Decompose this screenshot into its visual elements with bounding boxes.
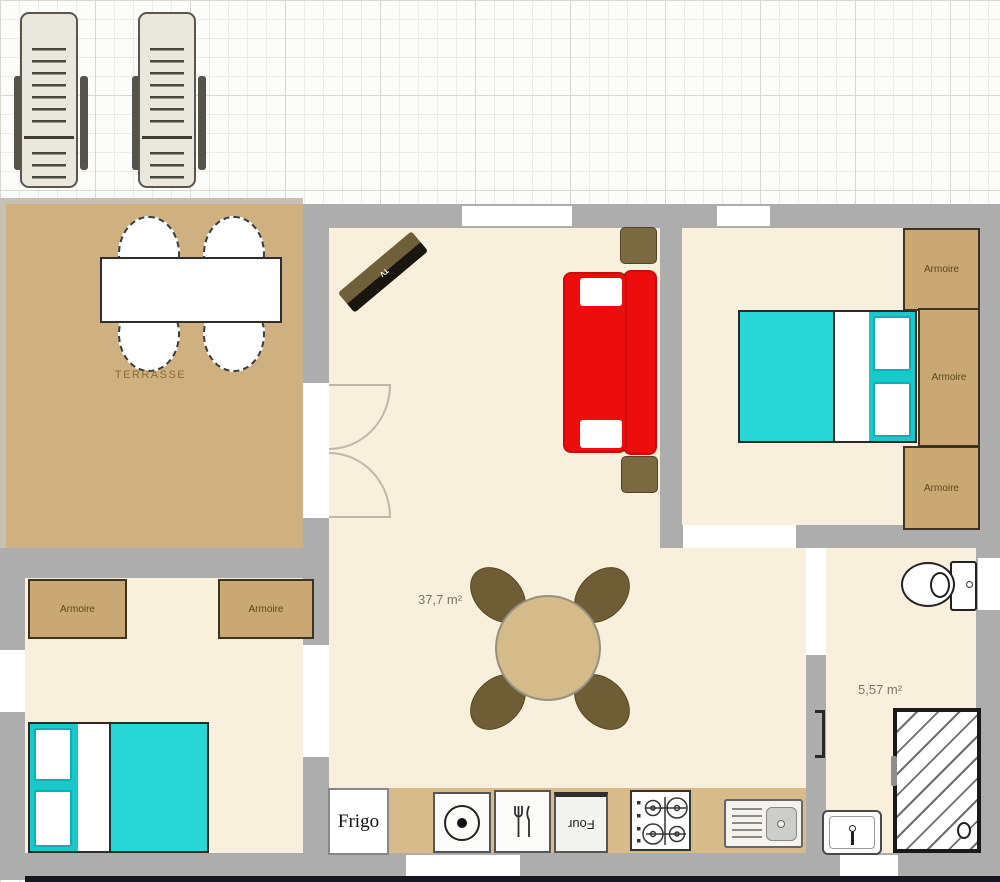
- shower-handle: [891, 756, 897, 786]
- window-bathroom-bottom[interactable]: [840, 855, 898, 878]
- wall-left-column: [303, 204, 329, 880]
- toilet-bowl[interactable]: [901, 562, 955, 607]
- faucet-stem: [851, 832, 854, 845]
- washing-machine-drum-icon: [444, 805, 480, 841]
- sun-lounger-2[interactable]: [132, 10, 206, 192]
- lounger-divider: [24, 136, 74, 139]
- lounger-slats: [32, 152, 66, 184]
- bed-pillow: [873, 316, 911, 371]
- bed-bedroom1[interactable]: [738, 310, 917, 443]
- lounger-slats: [32, 48, 66, 132]
- fridge[interactable]: Frigo: [328, 788, 389, 855]
- sun-lounger-1[interactable]: [14, 10, 88, 192]
- bedroom1-door-opening[interactable]: [683, 525, 796, 548]
- oven[interactable]: Four: [554, 792, 608, 853]
- door-tick-bottom: [815, 755, 825, 758]
- bed-pillow: [34, 790, 72, 847]
- sofa-pillow: [580, 420, 622, 448]
- living-area-label: 37,7 m²: [418, 592, 462, 607]
- toilet-seat: [930, 572, 950, 598]
- terrace-left-wall: [0, 198, 6, 548]
- dishwasher[interactable]: [494, 790, 551, 853]
- dining-table[interactable]: [495, 595, 601, 701]
- sink-drain: [777, 820, 785, 828]
- lounger-armrest: [80, 76, 88, 170]
- sofa[interactable]: [563, 270, 657, 455]
- french-door-opening[interactable]: [303, 383, 329, 518]
- washbasin[interactable]: [822, 810, 882, 855]
- bed-pillow-panel: [869, 312, 915, 441]
- lounger-slats: [150, 152, 184, 184]
- bottom-edge-bar: [25, 876, 1000, 882]
- window-kitchen-bottom[interactable]: [406, 855, 520, 878]
- wardrobe-label: Armoire: [924, 483, 959, 494]
- lounger-divider: [142, 136, 192, 139]
- window-living-top[interactable]: [462, 206, 572, 226]
- gas-burners-icon: [632, 792, 689, 849]
- bathroom-door-leaf[interactable]: [815, 710, 825, 758]
- terrace-label: TERRASSE: [103, 369, 198, 381]
- bedroom2-door-opening[interactable]: [303, 645, 329, 757]
- shower-drain: [957, 822, 971, 839]
- shower[interactable]: [893, 708, 981, 853]
- wardrobe[interactable]: Armoire: [218, 579, 314, 639]
- sink-drainboard: [732, 808, 762, 841]
- wardrobe[interactable]: Armoire: [903, 228, 980, 311]
- side-table-bottom[interactable]: [621, 456, 658, 493]
- window-bathroom-right[interactable]: [978, 558, 1000, 610]
- lounger-body: [138, 12, 196, 188]
- bathroom-area-label: 5,57 m²: [858, 682, 902, 697]
- terrace-table[interactable]: [100, 257, 282, 323]
- gas-hob[interactable]: [630, 790, 691, 851]
- bed-pillow-panel: [30, 724, 78, 851]
- window-bedroom1-top[interactable]: [717, 206, 770, 226]
- wall-terrace-bedroom2: [0, 548, 329, 578]
- wall-top: [303, 204, 1000, 228]
- tv-label: TV: [377, 266, 388, 277]
- bed-blanket: [740, 312, 835, 441]
- sofa-pillow: [580, 278, 622, 306]
- bathroom-door-opening[interactable]: [806, 548, 826, 655]
- fridge-label: Frigo: [338, 811, 379, 833]
- washing-machine[interactable]: [433, 792, 491, 853]
- wardrobe[interactable]: Armoire: [903, 446, 980, 530]
- lounger-body: [20, 12, 78, 188]
- wardrobe[interactable]: Armoire: [918, 308, 980, 447]
- toilet-flush-button: [966, 581, 973, 588]
- bed-pillow: [34, 728, 72, 781]
- drum-center-dot: [457, 818, 467, 828]
- faucet-icon: [849, 825, 856, 832]
- floor-plan: TERRASSE TV 37,7 m² Armoire Armoire Armo…: [0, 0, 1000, 882]
- lounger-slats: [150, 48, 184, 132]
- door-line: [822, 710, 825, 758]
- side-table-top[interactable]: [620, 227, 657, 264]
- wall-bedroom2-left: [0, 578, 25, 880]
- bed-pillow: [873, 382, 911, 437]
- terrace-top-wall: [0, 198, 303, 204]
- wardrobe-label: Armoire: [60, 604, 95, 615]
- bed-blanket: [109, 724, 207, 851]
- sofa-backrest: [623, 270, 657, 455]
- bed-bedroom2[interactable]: [28, 722, 209, 853]
- window-bedroom2-left[interactable]: [0, 650, 25, 712]
- wardrobe-label: Armoire: [931, 372, 966, 383]
- french-door-leaf-bottom: [329, 516, 391, 518]
- lounger-armrest: [198, 76, 206, 170]
- wall-living-bedroom1: [660, 204, 682, 548]
- wardrobe-label: Armoire: [924, 264, 959, 275]
- wardrobe[interactable]: Armoire: [28, 579, 127, 639]
- fork-knife-icon: [510, 803, 536, 841]
- sink-basin: [766, 807, 797, 841]
- oven-label: Four: [568, 817, 595, 832]
- wardrobe-label: Armoire: [248, 604, 283, 615]
- kitchen-sink[interactable]: [724, 799, 803, 848]
